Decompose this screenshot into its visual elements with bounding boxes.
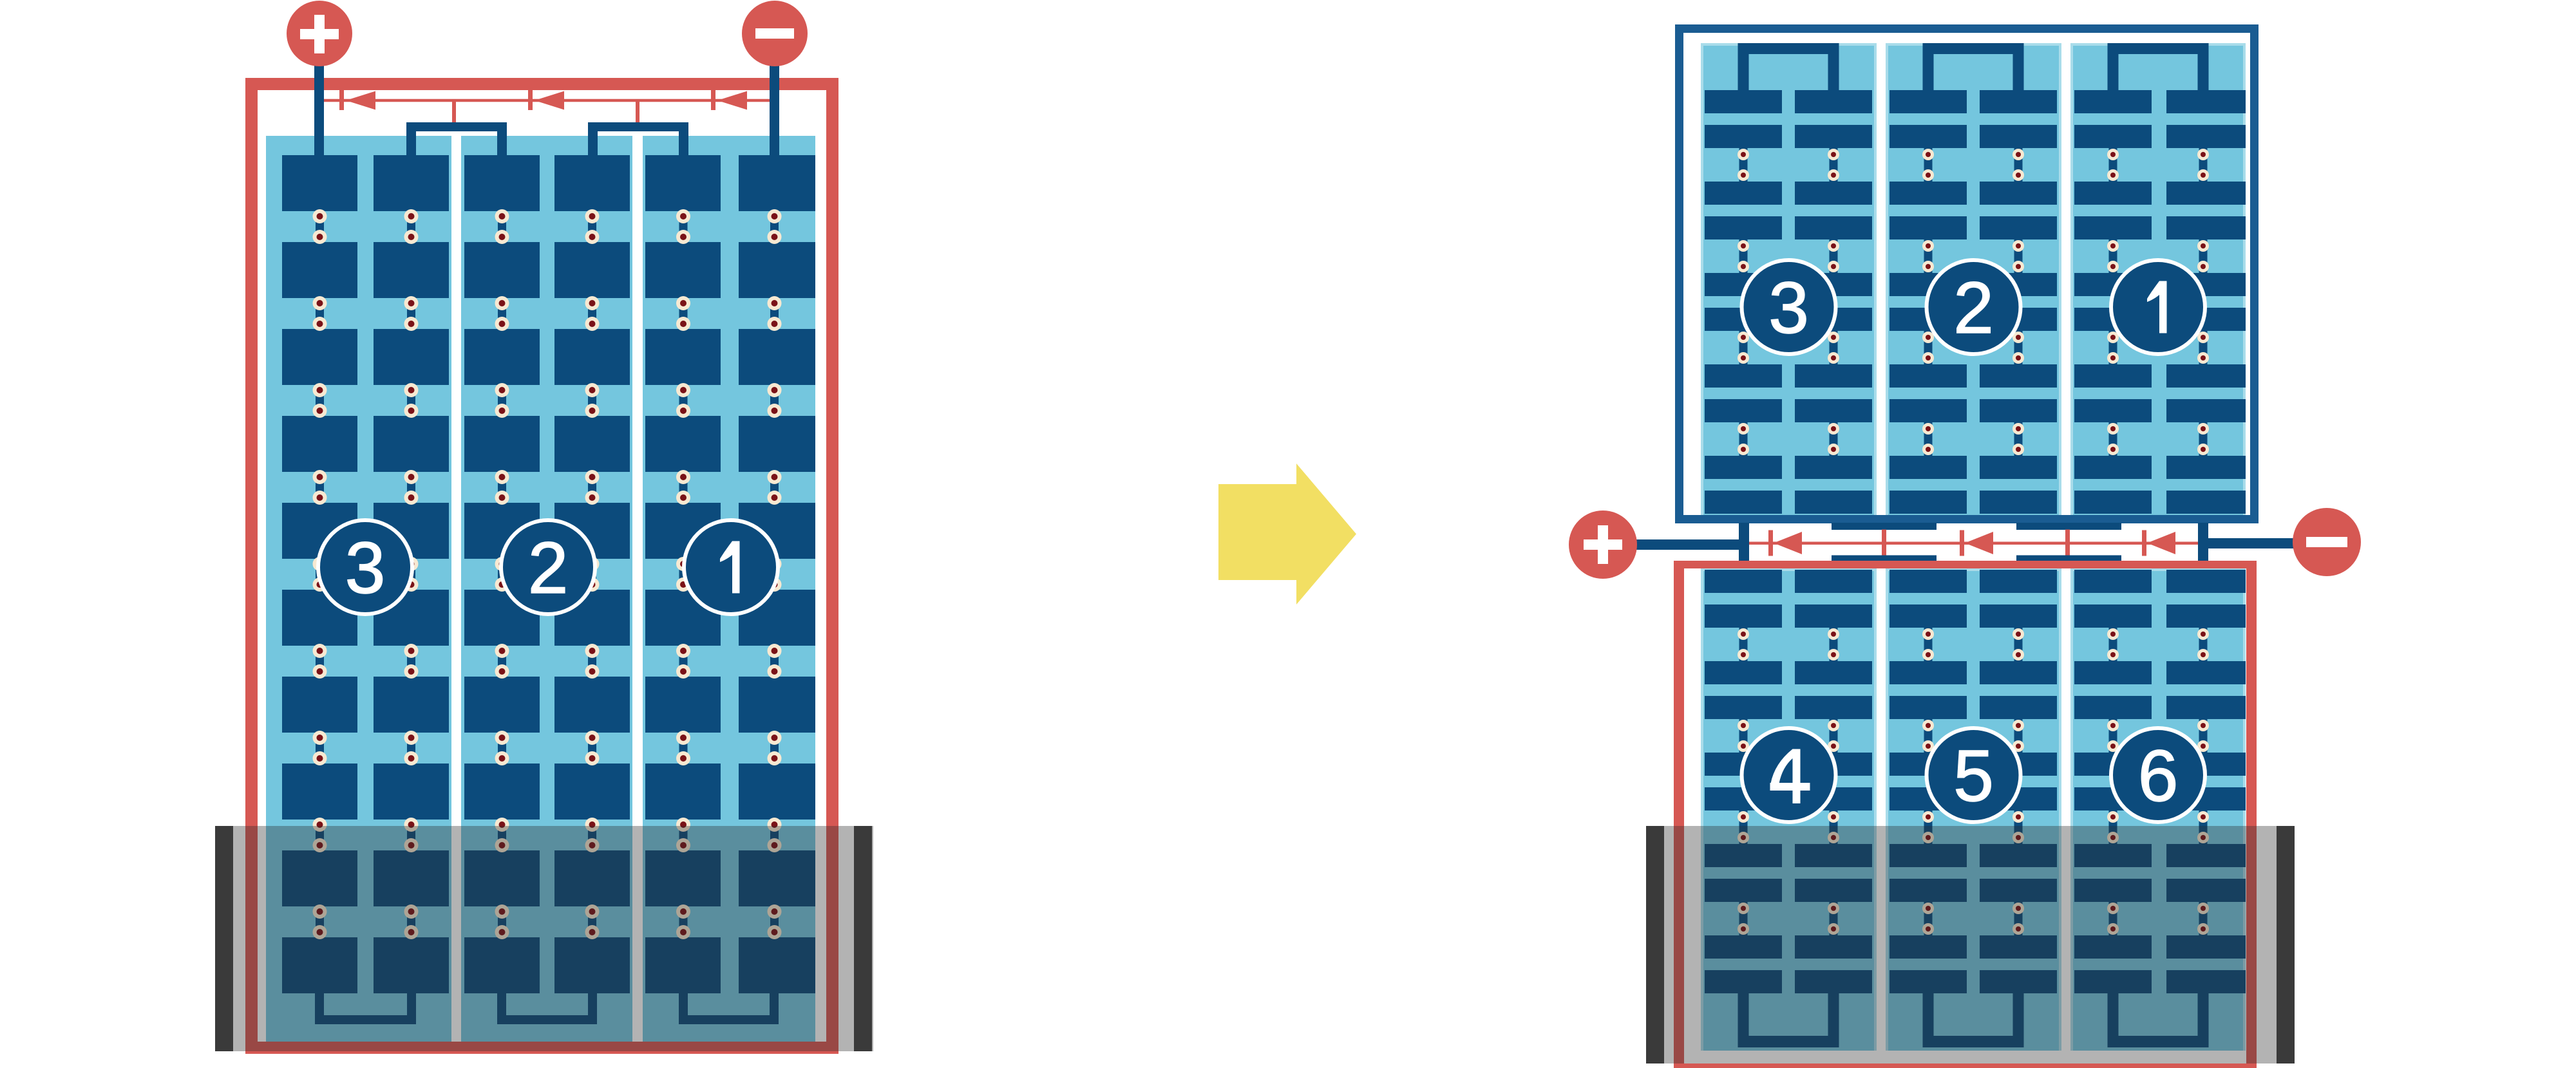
svg-text:3: 3 <box>345 527 386 608</box>
svg-text:5: 5 <box>1953 735 1994 816</box>
svg-text:2: 2 <box>528 527 569 608</box>
svg-text:2: 2 <box>1953 267 1994 348</box>
svg-text:3: 3 <box>1768 267 1809 348</box>
svg-text:6: 6 <box>2138 735 2179 816</box>
